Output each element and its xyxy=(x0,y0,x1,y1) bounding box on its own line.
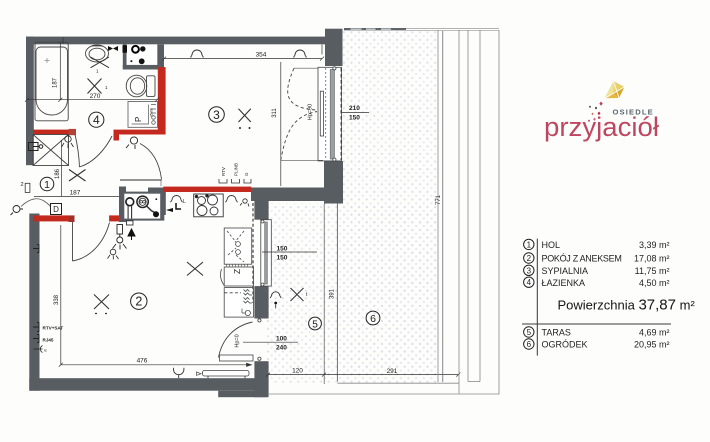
svg-text:1: 1 xyxy=(44,179,50,191)
svg-text:4: 4 xyxy=(93,113,100,127)
svg-text:1: 1 xyxy=(96,69,99,74)
svg-text:3: 3 xyxy=(213,108,220,122)
svg-text:1: 1 xyxy=(105,85,108,90)
svg-text:D: D xyxy=(53,205,59,214)
svg-text:150: 150 xyxy=(349,115,360,122)
svg-text:270: 270 xyxy=(90,93,101,100)
svg-text:5: 5 xyxy=(312,319,318,330)
svg-text:RJ45: RJ45 xyxy=(43,338,54,343)
svg-text:Hp=90: Hp=90 xyxy=(308,104,314,120)
svg-text:OGRÓDEK: OGRÓDEK xyxy=(542,340,588,350)
svg-text:1: 1 xyxy=(527,240,532,249)
svg-text:3,39 m²: 3,39 m² xyxy=(639,240,670,250)
svg-text:ic: ic xyxy=(44,348,47,353)
svg-text:2: 2 xyxy=(20,182,23,188)
svg-text:186: 186 xyxy=(55,168,61,179)
svg-text:150: 150 xyxy=(277,255,288,262)
svg-text:SYPIALNIA: SYPIALNIA xyxy=(542,266,589,276)
svg-text:RTV: RTV xyxy=(221,167,226,176)
svg-text:45x60: 45x60 xyxy=(150,108,154,117)
svg-text:RTV+SAT: RTV+SAT xyxy=(43,326,64,331)
svg-text:5: 5 xyxy=(527,328,532,337)
svg-text:6: 6 xyxy=(527,340,532,349)
svg-text:20,95 m²: 20,95 m² xyxy=(634,340,670,350)
svg-text:150: 150 xyxy=(277,246,288,253)
svg-text:P: P xyxy=(134,117,143,122)
svg-text:391: 391 xyxy=(330,288,336,299)
svg-text:przyjaciół: przyjaciół xyxy=(544,112,659,142)
svg-text:PLINB: PLINB xyxy=(234,163,239,176)
svg-text:4: 4 xyxy=(527,278,532,287)
svg-text:100: 100 xyxy=(276,336,287,343)
svg-text:240: 240 xyxy=(276,345,287,352)
svg-text:4,50 m²: 4,50 m² xyxy=(639,278,670,288)
svg-text:TARAS: TARAS xyxy=(542,328,571,338)
svg-text:ŁAZIENKA: ŁAZIENKA xyxy=(542,278,586,288)
svg-text:L: L xyxy=(183,199,186,205)
svg-text:11,75 m²: 11,75 m² xyxy=(635,266,670,276)
svg-text:311: 311 xyxy=(272,108,278,118)
svg-text:Z: Z xyxy=(232,269,242,274)
svg-text:G: G xyxy=(244,172,249,176)
svg-text:17,08 m²: 17,08 m² xyxy=(634,254,670,264)
svg-text:210: 210 xyxy=(349,105,360,112)
svg-text:291: 291 xyxy=(387,368,398,375)
svg-text:354: 354 xyxy=(256,52,267,59)
svg-text:187: 187 xyxy=(70,190,81,197)
svg-text:120: 120 xyxy=(292,368,303,375)
svg-text:476: 476 xyxy=(137,358,148,365)
svg-text:3: 3 xyxy=(527,266,532,275)
svg-text:HOL: HOL xyxy=(542,240,561,250)
svg-text:Powierzchnia 37,87 m²: Powierzchnia 37,87 m² xyxy=(558,297,696,314)
svg-text:2: 2 xyxy=(527,254,532,263)
svg-text:6: 6 xyxy=(370,313,376,325)
svg-text:771: 771 xyxy=(436,194,442,205)
svg-text:4,69 m²: 4,69 m² xyxy=(639,328,670,338)
svg-text:338: 338 xyxy=(54,294,60,305)
svg-text:Hp=0: Hp=0 xyxy=(235,334,241,347)
svg-text:POKÓJ Z ANEKSEM: POKÓJ Z ANEKSEM xyxy=(542,254,622,264)
svg-text:187: 187 xyxy=(53,77,59,88)
svg-text:2: 2 xyxy=(135,295,142,309)
